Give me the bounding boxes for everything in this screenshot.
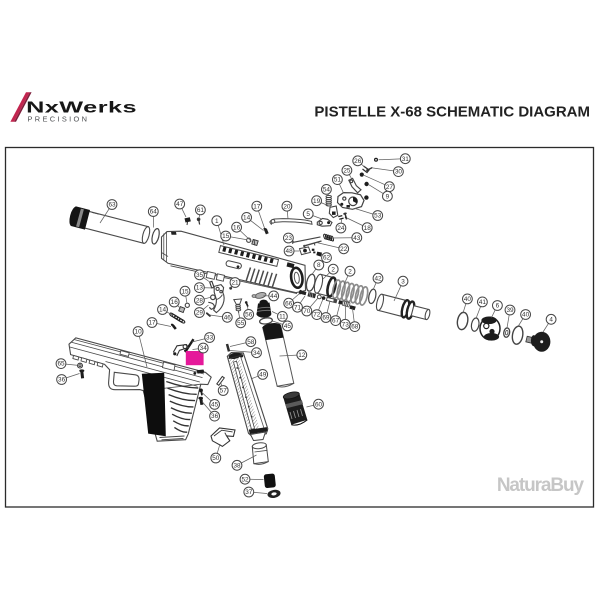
svg-text:2: 2 bbox=[331, 266, 335, 273]
svg-text:72: 72 bbox=[313, 312, 321, 319]
svg-text:73: 73 bbox=[342, 321, 350, 328]
svg-text:17: 17 bbox=[148, 320, 156, 327]
svg-text:34: 34 bbox=[253, 350, 261, 357]
svg-text:36: 36 bbox=[211, 413, 219, 420]
svg-text:55: 55 bbox=[237, 320, 245, 327]
svg-text:64: 64 bbox=[150, 209, 158, 216]
svg-text:1: 1 bbox=[215, 218, 219, 225]
svg-text:70: 70 bbox=[303, 308, 311, 315]
svg-text:40: 40 bbox=[464, 296, 472, 303]
svg-text:14: 14 bbox=[243, 215, 251, 222]
svg-text:19: 19 bbox=[313, 198, 321, 205]
svg-text:PRECISION: PRECISION bbox=[28, 114, 90, 123]
svg-text:45: 45 bbox=[211, 402, 219, 409]
svg-text:48: 48 bbox=[286, 248, 294, 255]
svg-text:4: 4 bbox=[549, 316, 553, 323]
svg-text:60: 60 bbox=[315, 401, 323, 408]
svg-text:41: 41 bbox=[479, 299, 487, 306]
svg-text:13: 13 bbox=[196, 285, 204, 292]
svg-text:42: 42 bbox=[374, 275, 382, 282]
svg-text:45: 45 bbox=[284, 323, 292, 330]
svg-text:38: 38 bbox=[233, 462, 241, 469]
svg-text:52: 52 bbox=[241, 476, 249, 483]
svg-text:36: 36 bbox=[58, 377, 66, 384]
svg-text:16: 16 bbox=[233, 224, 241, 231]
svg-text:66: 66 bbox=[285, 300, 293, 307]
svg-text:5: 5 bbox=[306, 211, 310, 218]
svg-text:57: 57 bbox=[220, 388, 228, 395]
svg-text:29: 29 bbox=[196, 310, 204, 317]
svg-text:6: 6 bbox=[496, 303, 500, 310]
svg-text:31: 31 bbox=[402, 156, 410, 163]
svg-text:44: 44 bbox=[270, 293, 278, 300]
svg-text:9: 9 bbox=[386, 193, 390, 200]
svg-text:15: 15 bbox=[222, 233, 230, 240]
svg-text:27: 27 bbox=[386, 184, 394, 191]
svg-text:33: 33 bbox=[206, 335, 214, 342]
svg-text:11: 11 bbox=[279, 314, 286, 321]
svg-text:54: 54 bbox=[323, 187, 331, 194]
svg-text:65: 65 bbox=[57, 361, 65, 368]
svg-text:58: 58 bbox=[247, 339, 255, 346]
svg-text:18: 18 bbox=[364, 225, 372, 232]
svg-text:8: 8 bbox=[317, 262, 321, 269]
svg-text:22: 22 bbox=[340, 246, 348, 253]
svg-text:30: 30 bbox=[395, 169, 403, 176]
svg-text:49: 49 bbox=[259, 372, 267, 379]
svg-text:43: 43 bbox=[353, 235, 361, 242]
svg-text:17: 17 bbox=[253, 203, 261, 210]
svg-text:21: 21 bbox=[231, 280, 239, 287]
svg-text:14: 14 bbox=[159, 307, 167, 314]
svg-text:47: 47 bbox=[176, 201, 184, 208]
svg-text:39: 39 bbox=[506, 307, 514, 314]
svg-text:69: 69 bbox=[322, 315, 330, 322]
svg-text:46: 46 bbox=[224, 314, 232, 321]
svg-text:37: 37 bbox=[245, 489, 253, 496]
svg-text:26: 26 bbox=[354, 158, 362, 165]
svg-text:62: 62 bbox=[323, 255, 331, 262]
svg-text:2: 2 bbox=[348, 268, 352, 275]
svg-text:24: 24 bbox=[337, 225, 345, 232]
svg-text:63: 63 bbox=[108, 202, 116, 209]
svg-text:51: 51 bbox=[334, 177, 342, 184]
svg-text:25: 25 bbox=[343, 167, 351, 174]
svg-text:28: 28 bbox=[196, 297, 204, 304]
svg-text:23: 23 bbox=[285, 235, 293, 242]
svg-text:3: 3 bbox=[401, 278, 405, 285]
svg-text:50: 50 bbox=[212, 455, 220, 462]
svg-text:61: 61 bbox=[197, 207, 205, 214]
svg-text:15: 15 bbox=[181, 288, 189, 295]
svg-text:PISTELLE X-68 SCHEMATIC DIAGRA: PISTELLE X-68 SCHEMATIC DIAGRAM bbox=[314, 104, 590, 121]
svg-text:10: 10 bbox=[135, 329, 143, 336]
svg-text:71: 71 bbox=[294, 304, 302, 311]
svg-text:53: 53 bbox=[374, 213, 382, 220]
svg-text:35: 35 bbox=[196, 272, 204, 279]
svg-text:34: 34 bbox=[200, 345, 208, 352]
svg-text:40: 40 bbox=[522, 312, 530, 319]
svg-text:67: 67 bbox=[332, 318, 340, 325]
svg-text:20: 20 bbox=[283, 203, 291, 210]
svg-text:16: 16 bbox=[171, 299, 179, 306]
svg-text:12: 12 bbox=[298, 352, 306, 359]
svg-text:NaturaBuy: NaturaBuy bbox=[497, 475, 585, 496]
svg-text:68: 68 bbox=[351, 324, 359, 331]
svg-text:56: 56 bbox=[245, 312, 253, 319]
